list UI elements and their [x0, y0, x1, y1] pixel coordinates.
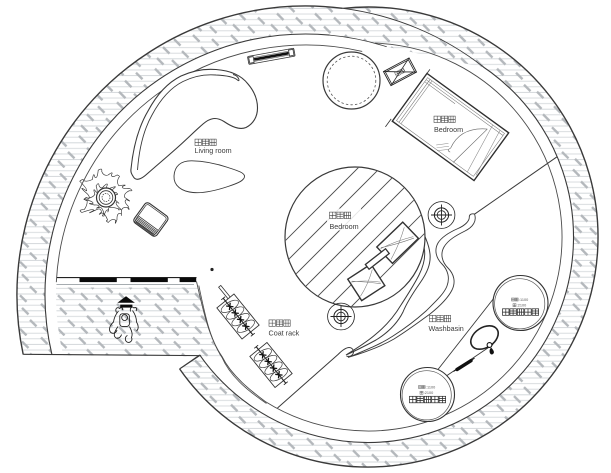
svg-text:Bedroom: Bedroom — [434, 125, 463, 134]
svg-text:Bedroom: Bedroom — [330, 222, 359, 231]
svg-text::2100: :2100 — [517, 304, 527, 308]
svg-text::1100: :1100 — [426, 386, 435, 390]
svg-text:Washbasin: Washbasin — [429, 324, 464, 333]
svg-text:Coat rack: Coat rack — [269, 329, 300, 338]
svg-text::1100: :1100 — [519, 298, 528, 302]
svg-text:Living room: Living room — [195, 146, 232, 155]
svg-text::2100: :2100 — [424, 391, 434, 395]
